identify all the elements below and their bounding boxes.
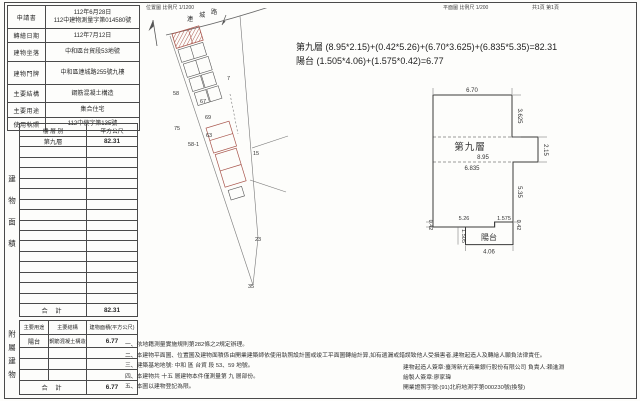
- side-label-text: 附屬建物: [7, 330, 18, 384]
- table-row: 陽台 鋼筋混凝土構造 6.77: [20, 334, 137, 347]
- floor-table-header: 樓 層 別 平方公尺: [20, 124, 137, 136]
- empty-row: [20, 261, 137, 271]
- floor-table-body: 第九層 82.31: [20, 136, 137, 303]
- road-name-char: 連: [187, 15, 194, 23]
- survey-result-sheet: 申請書 112年6月28日 112中建物測量字第014580號 轉繪日期 112…: [0, 0, 640, 401]
- site-location-map: 連 城 路: [140, 8, 330, 298]
- row-label: 申請書: [8, 6, 46, 28]
- table-row: 主要結構 鋼筋混凝土構造: [8, 84, 139, 102]
- floor-area-value: 82.31: [87, 137, 137, 146]
- empty-row: [20, 157, 137, 167]
- empty-row: [20, 199, 137, 209]
- floor-total-value: 82.31: [87, 304, 137, 316]
- dim-label: 6.835: [464, 166, 480, 172]
- empty-row: [20, 209, 137, 219]
- table-row: 轉繪日期 112年7月12日: [8, 28, 139, 42]
- row-value: 中和區台貿段53地號: [46, 43, 139, 61]
- table-row: 主要用途 集合住宅: [8, 102, 139, 117]
- subject-building-footprint: [172, 26, 203, 49]
- attached-table-header: 主要用途 主要結構 建物面積(平方公尺): [20, 321, 137, 334]
- lot-number-label: 7: [227, 76, 230, 82]
- empty-row: [20, 167, 137, 177]
- lot-number-label: 63: [206, 133, 212, 139]
- empty-row: [20, 282, 137, 292]
- area-calculation-formula: 第九層 (8.95*2.15)+(0.42*5.26)+(6.70*3.625)…: [296, 41, 636, 68]
- license-number-line: 開業證照字號:(91)北府地測字第000230號(換發): [403, 383, 633, 393]
- total-label: 合 計: [20, 381, 87, 394]
- formula-balcony-line: 陽台 (1.505*4.06)+(1.575*0.42)=6.77: [296, 55, 636, 69]
- application-date: 112年6月28日: [74, 9, 112, 17]
- column-header-floor: 樓 層 別: [20, 124, 87, 136]
- building-info-table: 申請書 112年6月28日 112中建物測量字第014580號 轉繪日期 112…: [7, 5, 140, 131]
- dimension-labels: 6.70 3.625 2.15 8.95 6.835 5.35 5.26 1.5…: [427, 88, 548, 256]
- attached-total-row: 合 計 6.77: [20, 380, 137, 394]
- row-value: 112年7月12日: [46, 29, 139, 42]
- table-row: 建物門牌 中和區連城路255號九樓: [8, 61, 139, 84]
- column-header-structure: 主要結構: [49, 321, 87, 334]
- lot-number-label: 58: [173, 91, 179, 97]
- floor-room-label: 第九層: [454, 141, 486, 153]
- floor-area-table: 樓 層 別 平方公尺 第九層 82.31 合 計 8: [19, 123, 138, 317]
- column-header-area: 建物面積(平方公尺): [87, 321, 137, 334]
- row-label: 建物坐落: [8, 43, 46, 61]
- empty-row: [20, 347, 137, 358]
- column-header-use: 主要用途: [20, 321, 49, 334]
- note-item: 一、依地籍測量實施規則第282條之2規定辦理。: [125, 340, 630, 351]
- balcony-label: 陽台: [481, 232, 497, 242]
- floor-total-row: 合 計 82.31: [20, 303, 137, 316]
- application-number: 112中建物測量字第014580號: [54, 17, 132, 25]
- attached-use: 陽台: [20, 335, 49, 347]
- empty-row: [20, 358, 137, 369]
- row-value: 112年6月28日 112中建物測量字第014580號: [46, 6, 139, 28]
- north-arrow-icon: [149, 20, 158, 46]
- empty-row: [20, 369, 137, 380]
- floor-plan-scale-label: 平面圖 比例尺 1/200: [443, 4, 488, 11]
- dim-label: 0.42: [515, 220, 521, 231]
- dim-label: 1.505: [460, 229, 466, 243]
- builder-signature-line: 建物起造人簽章:臺灣新光商業銀行股份有限公司 負責人:賴進淵: [403, 363, 633, 373]
- table-row: 建物坐落 中和區台貿段53地號: [8, 42, 139, 61]
- dim-label: 2.15: [542, 144, 548, 156]
- row-label: 轉繪日期: [8, 29, 46, 42]
- dim-label: 8.95: [477, 155, 489, 161]
- empty-row: [20, 188, 137, 198]
- lot-number-label: 75: [174, 126, 180, 132]
- lot-number-labels: 58 67 69 75 58-1 63 7 15 23 35: [173, 76, 261, 290]
- note-item: 二、本建物平面圖、位置圖及建物面積係由開業建築師依使用執照設計圖或竣工平面圖轉繪…: [125, 351, 630, 362]
- side-label-text: 建物面積: [7, 175, 18, 261]
- table-row: 第九層 82.31: [20, 136, 137, 146]
- total-label: 合 計: [20, 304, 87, 316]
- signature-block: 建物起造人簽章:臺灣新光商業銀行股份有限公司 負責人:賴進淵 繪製人簽章:廖家瑋…: [403, 363, 633, 393]
- lot-number-label: 69: [205, 115, 211, 121]
- outlined-buildings-red: [206, 121, 247, 187]
- attached-building-table: 主要用途 主要結構 建物面積(平方公尺) 陽台 鋼筋混凝土構造 6.77 合 計…: [19, 320, 138, 395]
- lot-number-label: 15: [253, 151, 259, 157]
- page-number-label: 共1頁 第1頁: [532, 4, 559, 11]
- attached-side-label: 附屬建物: [6, 322, 18, 392]
- column-header-area: 平方公尺: [87, 124, 137, 136]
- empty-row: [20, 178, 137, 188]
- dim-label: 1.575: [497, 216, 511, 222]
- empty-row: [20, 293, 137, 303]
- dim-label: 5.26: [459, 216, 470, 222]
- empty-row: [20, 251, 137, 261]
- row-label: 主要結構: [8, 85, 46, 102]
- formula-floor-line: 第九層 (8.95*2.15)+(0.42*5.26)+(6.70*3.625)…: [296, 41, 636, 55]
- attached-structure: 鋼筋混凝土構造: [49, 335, 87, 347]
- lot-number-label: 58-1: [188, 142, 199, 148]
- floor-name: 第九層: [20, 137, 87, 146]
- empty-row: [20, 240, 137, 250]
- empty-row: [20, 146, 137, 156]
- empty-row: [20, 220, 137, 230]
- building-strip: [172, 26, 251, 203]
- row-value: 鋼筋混凝土構造: [46, 85, 139, 102]
- dim-label: 0.42: [427, 220, 433, 231]
- dim-label: 4.06: [483, 250, 495, 256]
- row-value: 中和區連城路255號九樓: [46, 62, 139, 84]
- dim-label: 6.70: [466, 88, 478, 94]
- floor-area-side-label: 建物面積: [6, 135, 18, 300]
- floor-plan-drawing: 6.70 3.625 2.15 8.95 6.835 5.35 5.26 1.5…: [413, 80, 563, 265]
- row-label: 主要用途: [8, 103, 46, 117]
- empty-row: [20, 230, 137, 240]
- row-label: 建物門牌: [8, 62, 46, 84]
- table-row: 申請書 112年6月28日 112中建物測量字第014580號: [8, 6, 139, 28]
- row-value: 集合住宅: [46, 103, 139, 117]
- lot-number-label: 35: [248, 284, 254, 290]
- drafter-signature-line: 繪製人簽章:廖家瑋: [403, 373, 633, 383]
- lot-number-label: 67: [200, 99, 206, 105]
- lot-number-label: 23: [255, 237, 261, 243]
- dim-label: 5.35: [516, 186, 522, 198]
- road-name-char: 路: [211, 8, 218, 16]
- empty-row: [20, 272, 137, 282]
- neighbor-buildings: [178, 42, 251, 202]
- dim-label: 3.625: [516, 108, 522, 124]
- road-name-char: 城: [199, 12, 205, 19]
